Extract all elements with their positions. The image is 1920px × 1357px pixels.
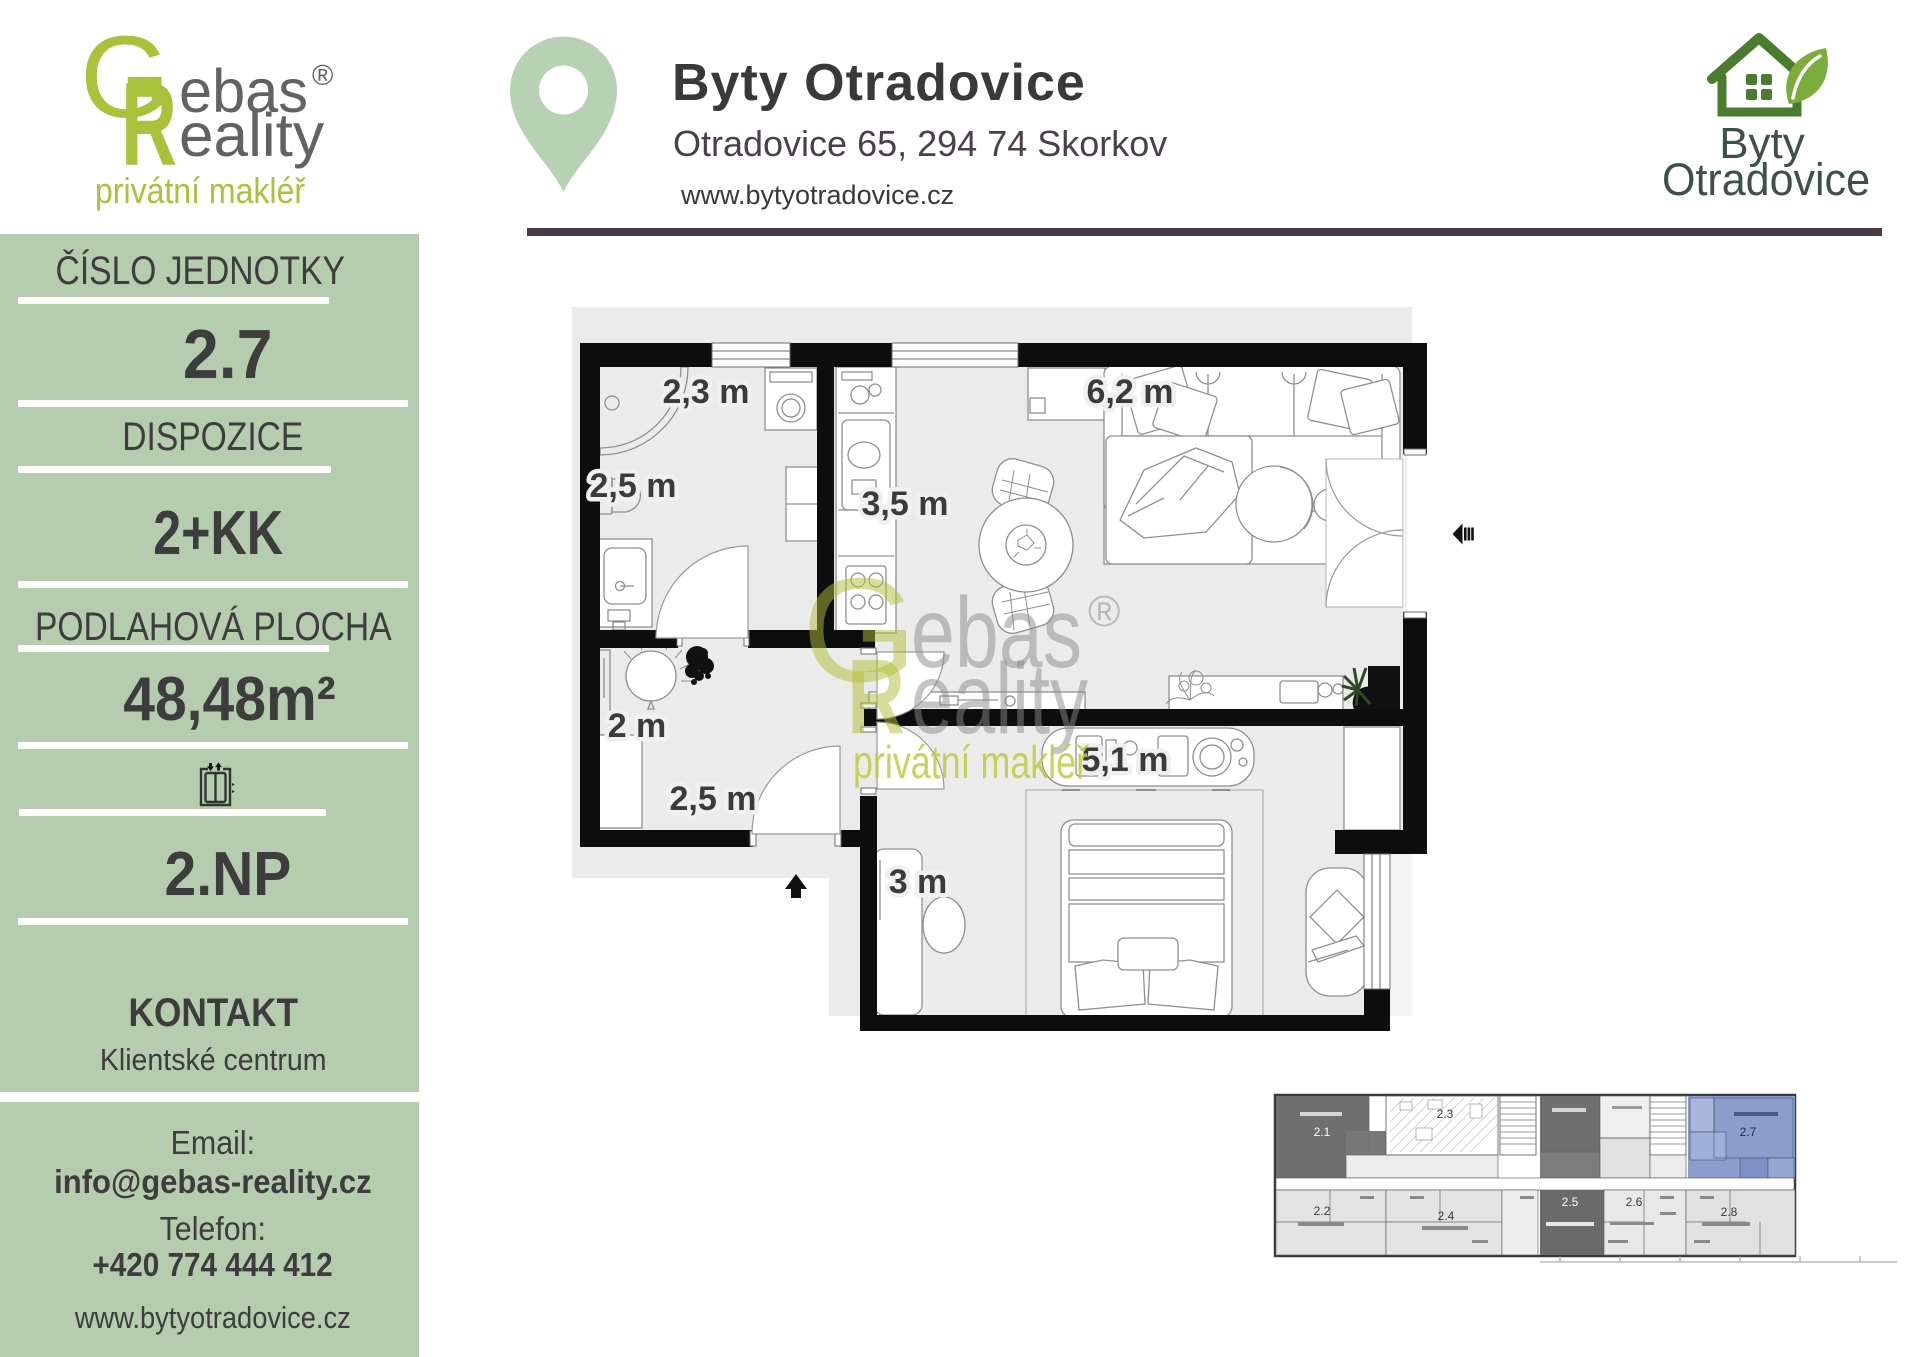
svg-text:eality: eality xyxy=(179,101,325,169)
svg-text:2.1: 2.1 xyxy=(1314,1125,1331,1139)
svg-text:3 m: 3 m xyxy=(889,863,948,901)
svg-text:2.4: 2.4 xyxy=(1438,1209,1455,1223)
svg-text:privátní makléř: privátní makléř xyxy=(853,736,1089,788)
svg-text:2.7: 2.7 xyxy=(1740,1125,1757,1139)
svg-text:2,5 m: 2,5 m xyxy=(670,780,757,818)
svg-text:2.6: 2.6 xyxy=(1626,1195,1643,1209)
svg-text:2,3 m: 2,3 m xyxy=(663,373,750,411)
svg-text:®: ® xyxy=(1088,587,1120,636)
svg-text:2.2: 2.2 xyxy=(1314,1204,1331,1218)
svg-text:5,1 m: 5,1 m xyxy=(1082,741,1169,779)
svg-text:6,2 m: 6,2 m xyxy=(1087,373,1174,411)
svg-text:2.3: 2.3 xyxy=(1437,1107,1454,1121)
svg-text:®: ® xyxy=(312,60,333,92)
svg-text:privátní makléř: privátní makléř xyxy=(95,170,306,211)
svg-text:2.5: 2.5 xyxy=(1562,1195,1579,1209)
svg-text:Otradovice: Otradovice xyxy=(1662,154,1870,205)
svg-text:3,5 m: 3,5 m xyxy=(862,485,949,523)
svg-text:2,5 m: 2,5 m xyxy=(590,467,677,505)
svg-text:2 m: 2 m xyxy=(608,707,667,745)
svg-text:2.8: 2.8 xyxy=(1721,1205,1738,1219)
